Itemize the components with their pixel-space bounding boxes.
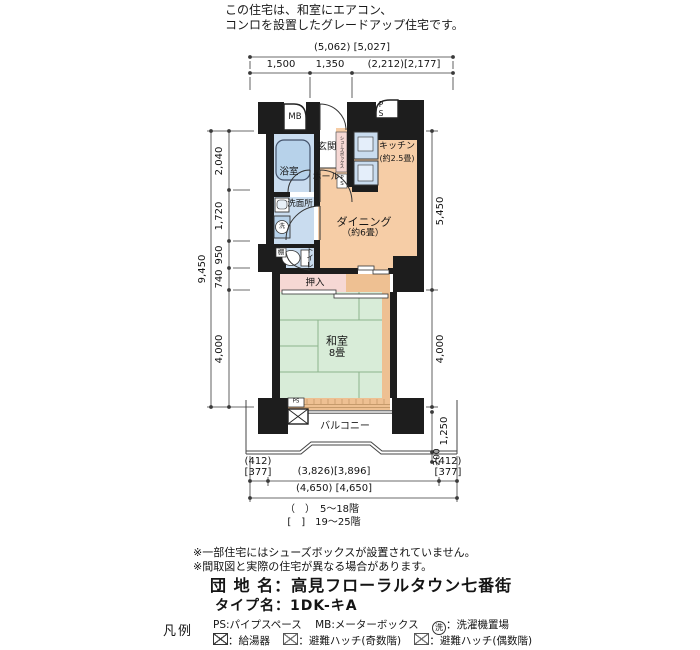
legend-heater-text: ：給湯器 xyxy=(228,635,270,647)
dim-bottom-left-paren: (412) xyxy=(245,457,272,467)
legend-hatch-even: ：避難ハッチ(偶数階) xyxy=(414,635,532,647)
room-label-balcony: バルコニー xyxy=(320,422,370,432)
legend-mb: MB:メーターボックス xyxy=(315,619,419,631)
dim-right-balcony: 1,250 xyxy=(440,417,450,446)
entrance-door-arc xyxy=(320,104,346,130)
room-label-mb: MB xyxy=(288,113,301,122)
dim-left-seg-4: 740 xyxy=(215,269,225,288)
legend-row-2: ：給湯器 ：避難ハッチ(奇数階) ：避難ハッチ(偶数階) xyxy=(213,633,542,648)
legend-hatch-odd-text: ：避難ハッチ(奇数階) xyxy=(298,635,401,647)
estate-name: 団 地 名：高見フローラルタウン七番街 xyxy=(210,576,512,596)
legend-washer-text: ：洗濯機置場 xyxy=(446,619,509,631)
dim-left-seg-3: 950 xyxy=(215,245,225,264)
room-label-closet: 押入 xyxy=(305,278,324,288)
room-label-ps-small: PS xyxy=(339,175,345,187)
room-label-shelf: 棚 xyxy=(278,249,285,256)
dim-top-seg-1: 1,500 xyxy=(267,60,296,70)
wood-strip-top xyxy=(346,274,390,292)
room-label-dining: ダイニング xyxy=(337,217,392,228)
floor-plan-page: この住宅は、和室にエアコン、 コンロを設置したグレードアップ住宅です。 xyxy=(0,0,700,650)
legend-title: 凡例 xyxy=(163,624,193,640)
dim-left-seg-1: 2,040 xyxy=(215,147,225,176)
legend-washer: 洗：洗濯機置場 xyxy=(432,619,509,631)
water-heater-icon xyxy=(213,633,228,645)
room-label-dining-size: （約6畳） xyxy=(342,230,384,239)
room-label-washitsu: 和室 xyxy=(326,336,348,347)
dim-left-seg-5: 4,000 xyxy=(215,335,225,364)
legend-ps: PS:パイプスペース xyxy=(213,619,302,631)
dim-top-seg-2: 1,350 xyxy=(316,60,345,70)
room-label-washitsu-size: 8畳 xyxy=(329,349,345,359)
room-label-kitchen-size: (約2.5畳) xyxy=(380,155,415,163)
legend-hatch-even-text: ：避難ハッチ(偶数階) xyxy=(429,635,532,647)
dim-bottom-right-paren: (412) xyxy=(435,457,462,467)
room-label-hall: ホール xyxy=(312,174,339,183)
dim-bottom-left-bracket: [377] xyxy=(245,468,272,478)
room-label-bath: 浴室 xyxy=(279,167,298,177)
room-label-washroom: 洗面所 xyxy=(287,200,313,209)
room-label-ps-balcony: PS xyxy=(293,399,300,405)
dim-right-lower: 4,000 xyxy=(436,335,446,364)
dim-bottom-center: (3,826)[3,896] xyxy=(298,467,371,477)
hatch-odd-icon xyxy=(283,633,298,645)
water-heater-symbol xyxy=(288,409,308,424)
room-label-shoe-box: シューズボックス xyxy=(338,136,344,168)
floor-note-paren: （ ） 5～18階 xyxy=(285,505,359,515)
dim-bottom-total: (4,650) [4,650] xyxy=(296,484,372,494)
room-label-kitchen: キッチン xyxy=(379,143,415,152)
room-label-toilet: トイレ xyxy=(305,246,316,269)
room-label-ps-top: PS xyxy=(377,100,386,118)
wood-strip-right xyxy=(382,292,390,398)
legend-hatch-odd: ：避難ハッチ(奇数階) xyxy=(283,635,401,647)
footnote-1: ※一部住宅にはシューズボックスが設置されていません。 xyxy=(193,546,476,560)
floor-note-bracket: [ ] 19～25階 xyxy=(287,518,360,528)
room-label-entrance: 玄関 xyxy=(317,142,336,152)
dim-left-total: 9,450 xyxy=(198,255,208,284)
footnote-2: ※間取図と実際の住宅が異なる場合があります。 xyxy=(193,560,432,574)
hatch-even-icon xyxy=(414,633,429,645)
dim-top-total: (5,062) [5,027] xyxy=(314,43,390,53)
legend-heater: ：給湯器 xyxy=(213,635,270,647)
dim-bottom-right-bracket: [377] xyxy=(435,468,462,478)
dim-right-upper: 5,450 xyxy=(436,197,446,226)
type-name: タイプ名：1DK-キA xyxy=(215,598,358,616)
dim-left-seg-2: 1,720 xyxy=(215,202,225,231)
kitchen-counter xyxy=(354,132,378,185)
washing-machine-icon-label: 洗 xyxy=(279,224,285,230)
dim-top-seg-3: (2,212)[2,177] xyxy=(368,60,441,70)
